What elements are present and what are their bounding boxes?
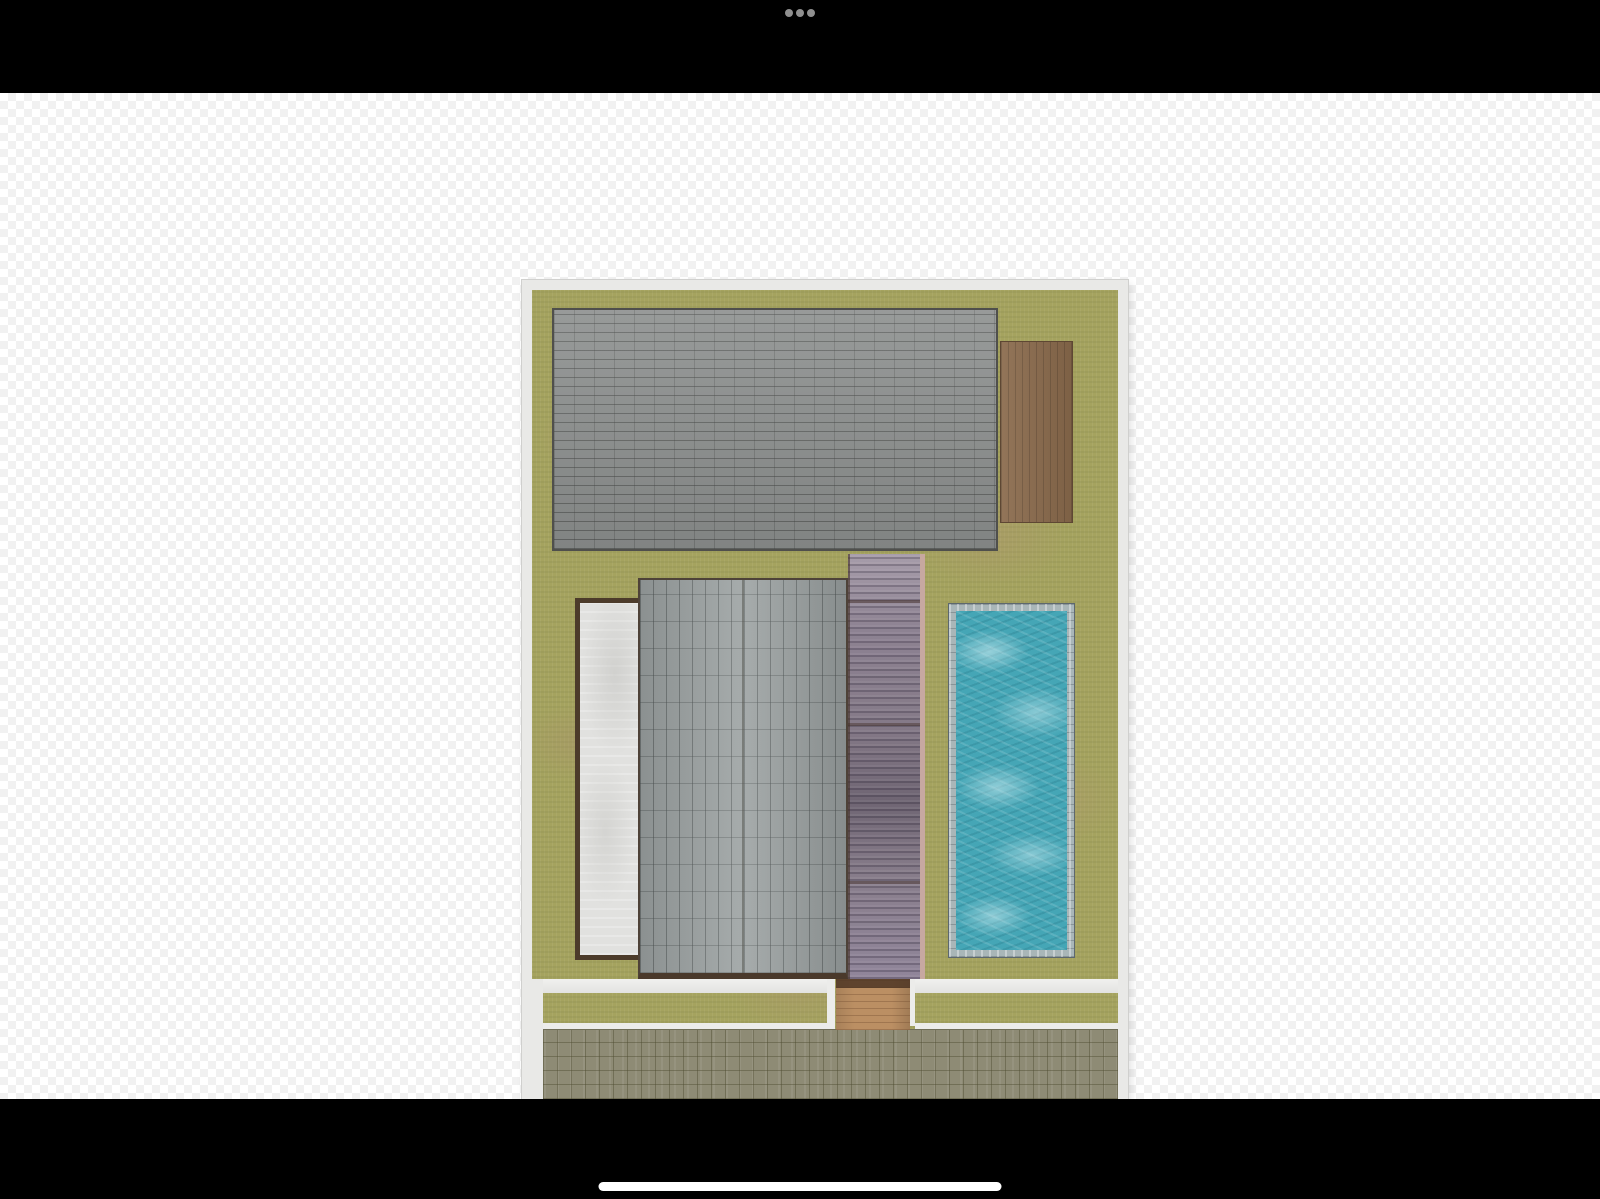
pool-water xyxy=(956,611,1067,950)
home-indicator[interactable] xyxy=(599,1182,1002,1191)
pergola-canopy[interactable] xyxy=(848,554,925,979)
ellipsis-dot-icon xyxy=(807,9,815,17)
garden-walkway-left[interactable] xyxy=(532,979,835,993)
ellipsis-dot-icon xyxy=(796,9,804,17)
wood-deck[interactable] xyxy=(1000,341,1073,523)
top-system-bar xyxy=(0,0,1600,93)
main-roof[interactable] xyxy=(552,308,998,551)
secondary-roof[interactable] xyxy=(638,578,848,979)
floor-plan[interactable] xyxy=(522,280,1128,1123)
swimming-pool[interactable] xyxy=(948,603,1075,958)
walkway-end-cap xyxy=(827,979,835,1026)
ellipsis-dot-icon xyxy=(785,9,793,17)
bottom-system-bar xyxy=(0,1099,1600,1199)
entry-step[interactable] xyxy=(836,979,910,1030)
design-canvas[interactable] xyxy=(0,93,1600,1099)
garden-walkway-right[interactable] xyxy=(907,979,1118,993)
more-options-button[interactable] xyxy=(785,9,815,17)
garden-wall-left xyxy=(532,979,543,1113)
